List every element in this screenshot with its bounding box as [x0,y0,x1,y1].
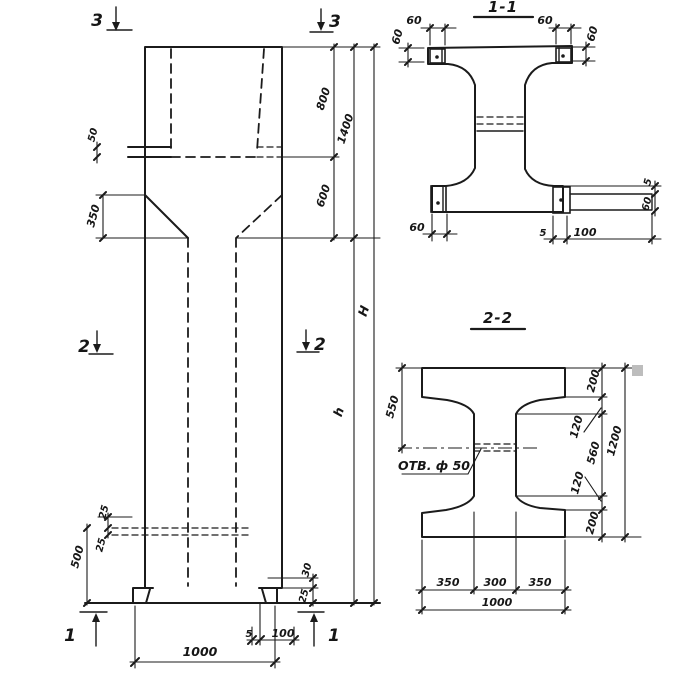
section-1-1-outline [428,46,572,212]
dim-head-1400: 1400 [335,112,357,145]
dim-foot-25: 25 [297,588,311,604]
dim-2-2-bottom-350-left: 350 [437,576,460,589]
dim-2-2-right-1200: 1200 [604,424,625,457]
dim-foot-100: 100 [272,627,295,640]
dim-1-1-top-left-h: 60 [389,27,406,45]
dim-socket-800: 800 [314,86,334,112]
section-mark-3-right: 3 [310,9,341,32]
scan-artifact-square [632,365,643,376]
dim-2-2-left-550: 550 [383,394,402,420]
dim-2-2-right-120-top: 120 [567,414,586,440]
section-1-1-view: 1-1 60 60 60 60 60 5 100 5 60 [389,0,661,244]
section-mark-3-left: 3 [91,7,132,31]
hole-label: ОТВ. ф 50 [398,458,470,473]
elevation-ledge-hidden [112,147,282,535]
section-2-2-title: 2-2 [483,309,513,327]
dim-taper-350: 350 [84,203,103,229]
dim-2-2-right-120-bottom: 120 [568,470,587,496]
mark-3-right-label: 3 [329,12,341,32]
dim-neck-600: 600 [314,183,334,209]
dim-2-2-bottom-350-right: 350 [529,576,552,589]
section-2-2-dimension-lines [396,363,641,614]
section-2-2-outline [422,368,565,537]
dim-2-2-bottom-300: 300 [484,576,507,589]
dim-total-H: H [355,303,373,318]
dim-1-1-top-left-w: 60 [406,14,422,27]
dim-1-1-bottom-100: 100 [574,226,597,239]
dim-1-1-right-5: 5 [642,177,654,187]
mark-3-left-label: 3 [91,11,103,31]
mark-1-right-label: 1 [328,626,340,646]
elevation-dim-ticks [84,44,377,666]
elevation-hidden-lines [171,49,282,586]
dim-1-1-top-right-h: 60 [584,24,601,42]
dim-base-1000: 1000 [183,644,218,659]
dim-foot-5: 5 [246,629,253,640]
section-1-1-hole-hidden [477,117,523,124]
dim-2-2-right-560: 560 [584,440,603,466]
column-drawing: 50 350 800 600 1400 h H 25 25 500 1000 5… [0,0,700,700]
section-mark-2-left: 2 [78,331,113,357]
section-1-1-title: 1-1 [488,0,518,16]
dim-2-2-right-200-bottom: 200 [583,510,602,536]
mark-1-left-label: 1 [64,626,76,646]
embedded-plates-1-1 [430,48,652,213]
section-mark-2-right: 2 [297,330,326,355]
dim-shaft-h: h [330,405,347,418]
dim-bottom-500: 500 [68,544,87,570]
section-2-2-view: 2-2 ОТВ. ф 50 550 200 120 560 120 200 12… [383,309,643,614]
technical-drawing-sheet: 50 350 800 600 1400 h H 25 25 500 1000 5… [0,0,700,700]
dim-slot-25-lower: 25 [94,537,108,553]
section-mark-1-left: 1 [64,612,107,646]
elevation-view: 50 350 800 600 1400 h H 25 25 500 1000 5… [64,7,380,668]
dim-1-1-top-right-w: 60 [537,14,553,27]
mark-2-left-label: 2 [78,337,90,357]
dim-2-2-right-200-top: 200 [584,368,603,394]
anchor-bar [570,194,652,210]
section-mark-1-right: 1 [298,612,340,646]
dim-slot-25-upper: 25 [97,504,111,520]
dim-1-1-bottom-left: 60 [409,221,425,234]
dim-1-1-bottom-5: 5 [540,228,547,239]
dim-ledge-50: 50 [86,127,100,143]
dim-2-2-bottom-1000: 1000 [482,596,513,609]
mark-2-right-label: 2 [314,335,326,355]
elevation-outline [85,47,380,603]
